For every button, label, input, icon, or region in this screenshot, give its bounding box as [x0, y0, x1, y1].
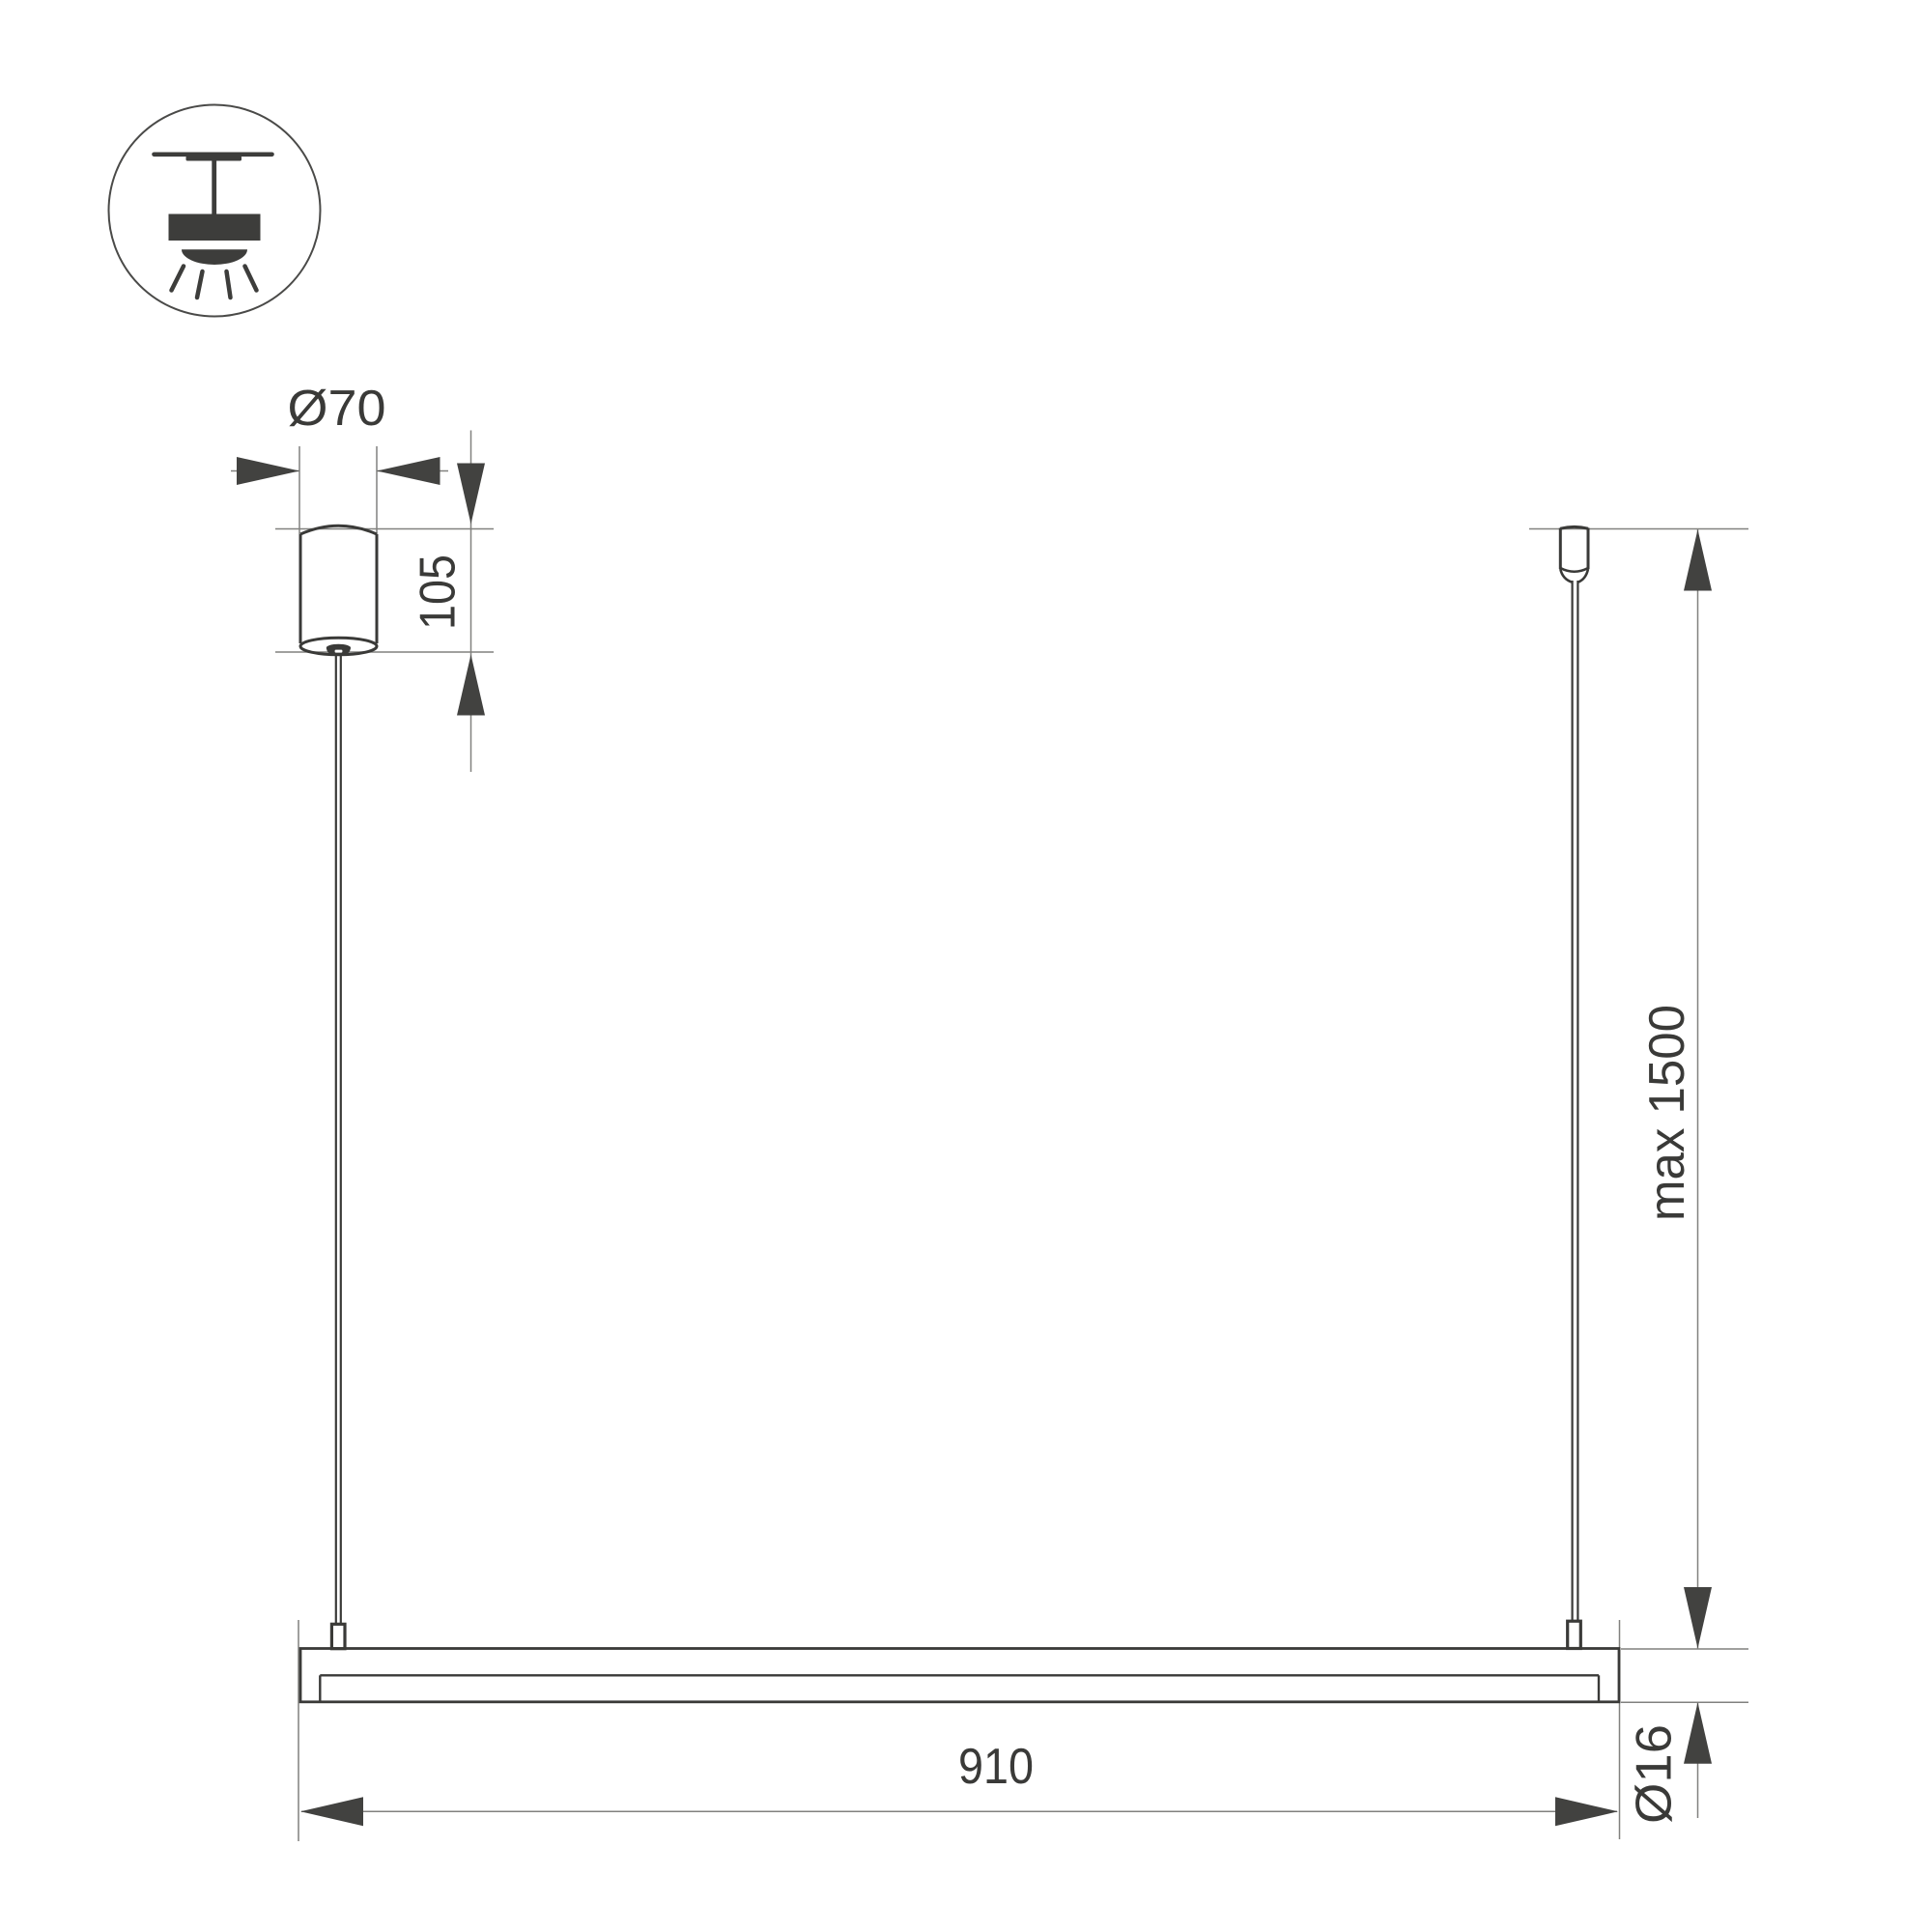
svg-text:910: 910 [958, 1739, 1034, 1795]
svg-text:Ø70: Ø70 [288, 381, 386, 437]
svg-text:Ø16: Ø16 [1627, 1724, 1683, 1824]
svg-text:max 1500: max 1500 [1639, 1005, 1695, 1221]
svg-text:105: 105 [411, 554, 467, 630]
